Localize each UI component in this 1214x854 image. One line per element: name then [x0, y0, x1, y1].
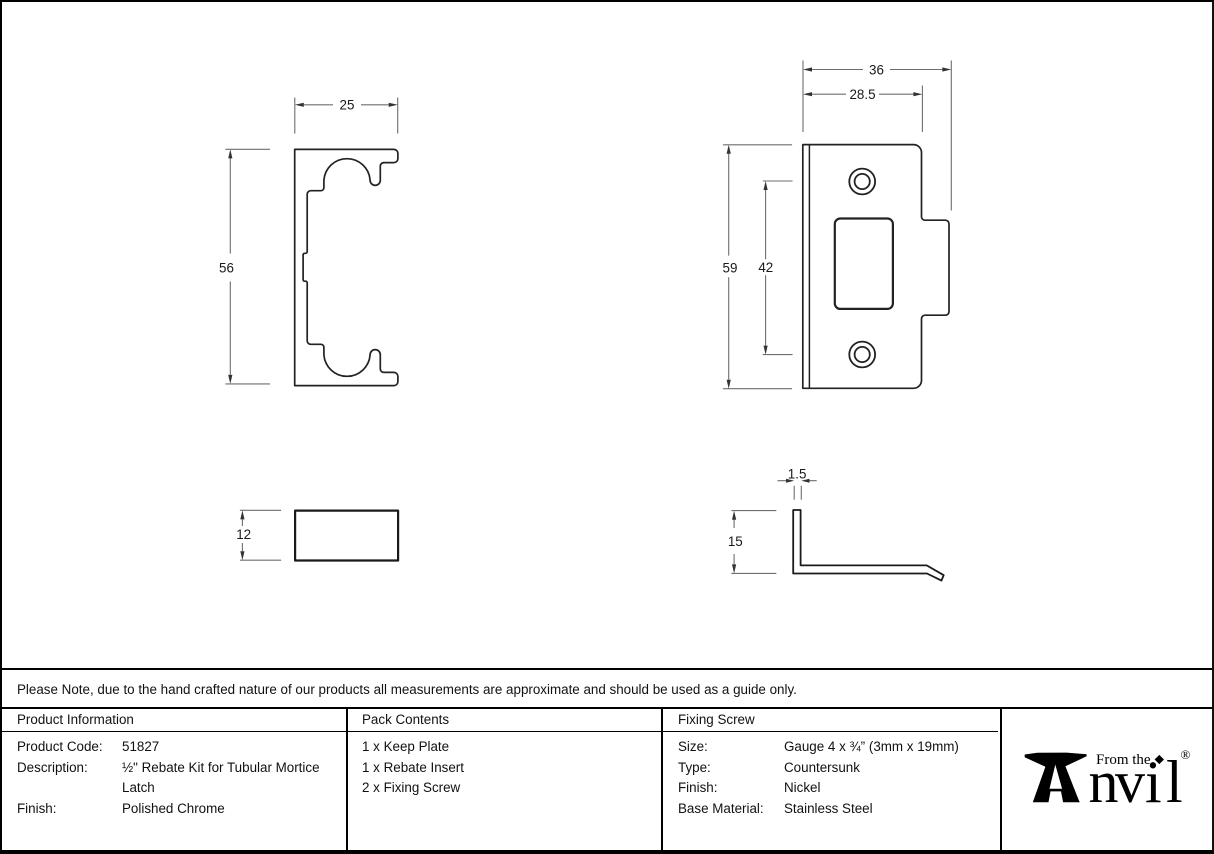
svg-text:59: 59 — [723, 261, 738, 276]
svg-text:28.5: 28.5 — [849, 87, 875, 102]
svg-text:36: 36 — [869, 62, 884, 77]
svg-text:25: 25 — [340, 98, 355, 113]
svg-text:12: 12 — [236, 527, 251, 542]
svg-text:nvil: nvil — [1089, 749, 1183, 815]
svg-text:15: 15 — [728, 534, 743, 549]
svg-text:42: 42 — [758, 260, 773, 275]
svg-text:®: ® — [1181, 747, 1191, 762]
svg-text:56: 56 — [219, 260, 234, 275]
svg-text:1.5: 1.5 — [788, 466, 807, 481]
